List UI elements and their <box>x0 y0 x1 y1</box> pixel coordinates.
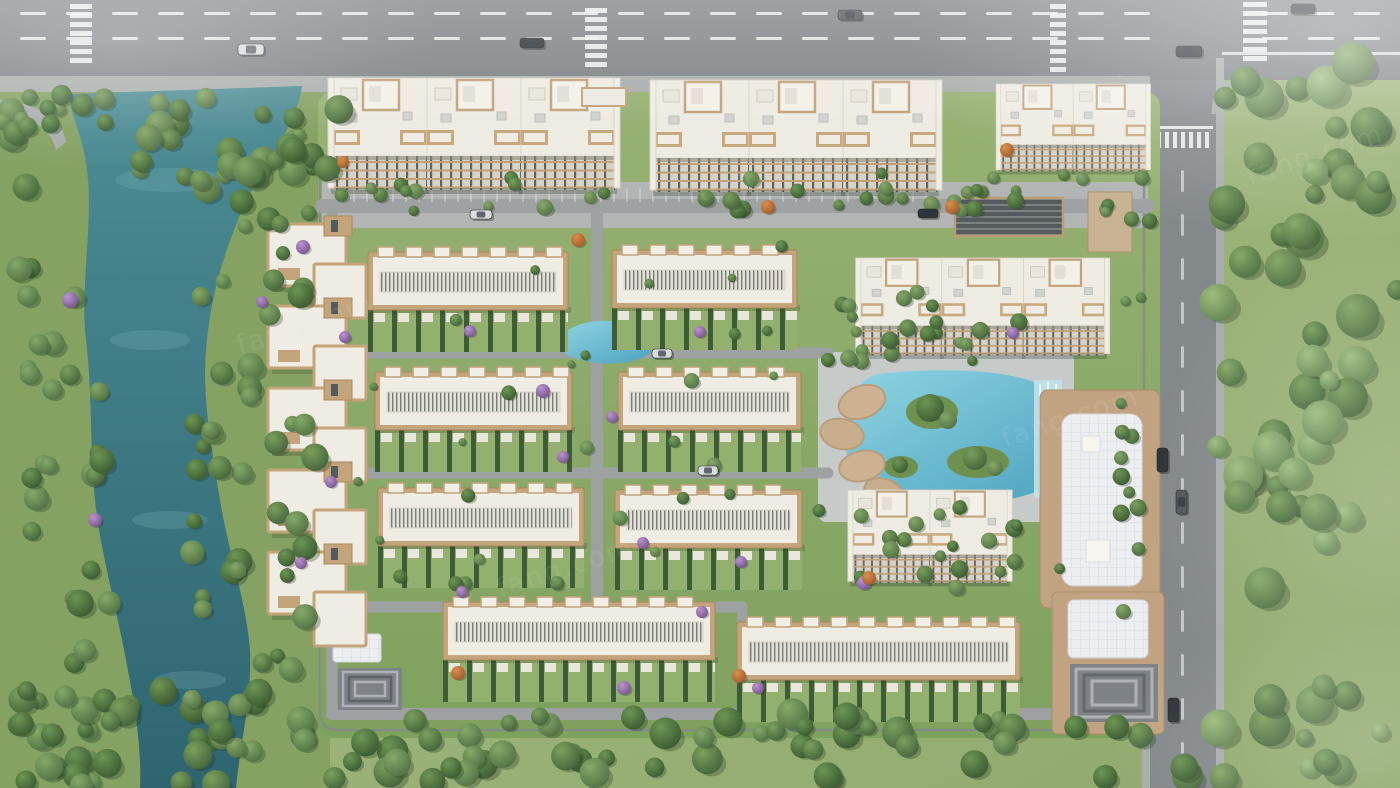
parking-stripe <box>639 188 641 202</box>
car <box>470 210 494 221</box>
car <box>652 349 674 360</box>
car <box>698 466 720 477</box>
site-plan-svg: fang.com fang.com fang.com fang.com fang… <box>0 0 1400 788</box>
townhouse-row <box>618 367 804 472</box>
car <box>918 209 940 220</box>
parking-ramp <box>338 668 402 710</box>
townhouse-row <box>443 597 718 702</box>
townhouse-row <box>375 367 575 472</box>
lane-dash <box>1181 302 1184 324</box>
lane-dash <box>1181 258 1184 280</box>
parking-stripe <box>626 188 628 202</box>
aerial-rendering: fang.com fang.com fang.com fang.com fang… <box>0 0 1400 788</box>
